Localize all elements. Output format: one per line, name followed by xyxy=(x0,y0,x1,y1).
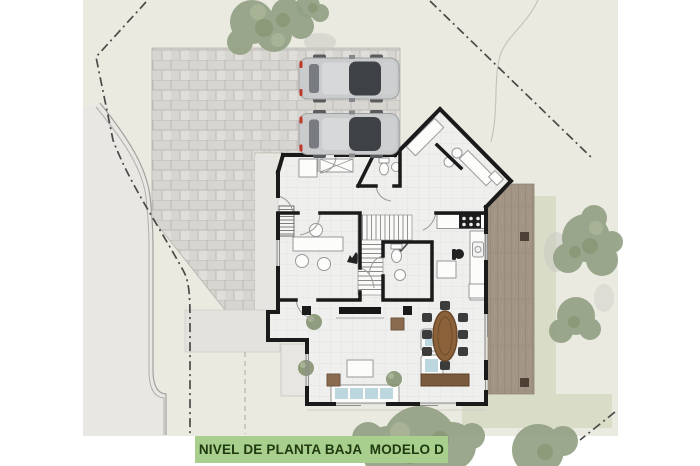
tree-shadow xyxy=(594,284,614,312)
bath-toilet xyxy=(391,244,402,263)
deck-post xyxy=(520,232,529,241)
car-2 xyxy=(299,110,399,158)
floor-plan-canvas: NIVEL DE PLANTA BAJA MODELO D xyxy=(0,0,700,466)
car-1 xyxy=(299,55,399,103)
kitchen-island xyxy=(437,261,456,278)
column xyxy=(403,306,412,315)
entry-wardrobe xyxy=(320,159,353,172)
column xyxy=(302,306,311,315)
office-desk xyxy=(293,237,343,251)
sofa xyxy=(331,385,399,403)
sideboard xyxy=(421,374,469,386)
side-path xyxy=(255,155,278,310)
powder-toilet xyxy=(379,158,389,175)
bath-sink xyxy=(395,270,406,281)
exterior-stair-hatch xyxy=(279,206,294,236)
kitchen-fridge xyxy=(469,284,485,298)
tree-bottom-2 xyxy=(512,424,578,466)
pouf xyxy=(327,374,340,386)
pouf xyxy=(391,318,404,330)
site-plan-drawing xyxy=(0,0,700,466)
floor-level-label: NIVEL DE PLANTA BAJA MODELO D xyxy=(195,436,448,463)
deck-post xyxy=(520,378,529,387)
entry-closet xyxy=(299,159,317,177)
kitchen-sink xyxy=(473,242,484,257)
wood-deck xyxy=(488,184,534,394)
kitchen-stove xyxy=(459,215,481,229)
dining-table xyxy=(433,311,457,361)
coffee-table xyxy=(347,360,373,377)
concrete-apron xyxy=(185,310,280,352)
